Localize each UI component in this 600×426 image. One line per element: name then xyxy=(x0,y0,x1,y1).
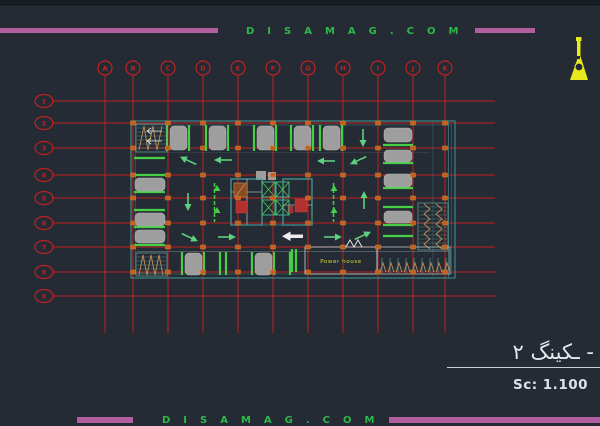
column-marker xyxy=(201,196,206,200)
column-marker xyxy=(201,221,206,225)
grid-label-6: 6 xyxy=(42,219,47,227)
direction-arrow xyxy=(218,234,236,241)
main-entry-arrow xyxy=(282,232,303,242)
column-marker xyxy=(411,221,416,225)
column-marker xyxy=(443,221,448,225)
breakline-symbol xyxy=(346,240,362,247)
column-marker xyxy=(443,173,448,177)
parking-stall xyxy=(384,174,412,187)
column-marker xyxy=(376,173,381,177)
grid-label-B: B xyxy=(131,64,136,72)
bottom-accent-bar-right xyxy=(389,417,600,423)
column-marker xyxy=(271,270,276,274)
column-marker xyxy=(376,245,381,249)
grid-label-A: A xyxy=(102,64,107,72)
column-marker xyxy=(131,221,136,225)
grid-label-C: C xyxy=(166,64,171,72)
page: { "banner_top": { "text": "DISAMAG.COM" … xyxy=(0,0,600,425)
column-marker xyxy=(236,221,241,225)
column-marker xyxy=(236,173,241,177)
bottom-accent-bar-left xyxy=(77,417,133,423)
column-marker xyxy=(271,146,276,150)
column-marker xyxy=(443,121,448,125)
column-marker xyxy=(131,196,136,200)
parking-stall xyxy=(170,126,187,150)
parking-stall xyxy=(323,126,340,150)
column-marker xyxy=(166,270,171,274)
column-marker xyxy=(131,173,136,177)
column-marker xyxy=(411,196,416,200)
grid-label-E: E xyxy=(236,64,240,72)
column-marker xyxy=(201,121,206,125)
stall-dividers xyxy=(167,125,342,151)
column-marker xyxy=(271,121,276,125)
column-marker xyxy=(411,270,416,274)
column-marker xyxy=(271,173,276,177)
title-block: ـکینگ ۲ - Sc: 1.100 xyxy=(447,340,600,393)
grid-label-1: 1 xyxy=(42,97,47,105)
column-marker xyxy=(131,245,136,249)
direction-arrow xyxy=(317,158,335,165)
column-marker xyxy=(131,146,136,150)
parking-stall xyxy=(384,211,412,223)
column-marker xyxy=(443,245,448,249)
grid-label-D: D xyxy=(200,64,206,72)
column-marker xyxy=(341,121,346,125)
column-marker xyxy=(341,173,346,177)
grid-label-2: 2 xyxy=(42,119,47,127)
floor-plan: Power house xyxy=(131,121,455,278)
parking-stall xyxy=(135,230,165,243)
direction-arrow xyxy=(180,230,199,244)
column-marker xyxy=(166,146,171,150)
parking-stall xyxy=(384,128,412,142)
column-marker xyxy=(201,245,206,249)
column-marker xyxy=(341,221,346,225)
column-marker xyxy=(166,121,171,125)
column-marker xyxy=(443,196,448,200)
column-marker xyxy=(306,121,311,125)
column-marker xyxy=(271,245,276,249)
direction-arrow xyxy=(214,157,232,164)
power-house-room: Power house xyxy=(292,240,377,274)
column-marker xyxy=(443,270,448,274)
grid-label-9: 9 xyxy=(42,292,47,300)
column-marker xyxy=(201,173,206,177)
column-marker xyxy=(236,245,241,249)
scale-label: Sc: 1.100 xyxy=(447,377,600,393)
grid-label-I: I xyxy=(377,64,379,72)
column-marker xyxy=(376,221,381,225)
column-marker xyxy=(131,270,136,274)
grid-label-3: 3 xyxy=(42,144,47,152)
direction-arrow xyxy=(353,229,372,243)
ramp-hatch-bottom-left xyxy=(136,253,167,276)
column-marker xyxy=(376,121,381,125)
column-marker xyxy=(341,245,346,249)
column-marker xyxy=(306,173,311,177)
drawing-title: ـکینگ ۲ - xyxy=(447,340,600,368)
grid-label-G: G xyxy=(305,64,310,72)
column-marker xyxy=(271,196,276,200)
direction-arrow xyxy=(185,193,192,211)
parking-stalls-top xyxy=(167,125,342,151)
column-marker xyxy=(306,270,311,274)
power-house-label: Power house xyxy=(320,259,362,265)
column-marker xyxy=(411,245,416,249)
parking-stall xyxy=(135,213,165,226)
column-marker xyxy=(236,270,241,274)
column-marker xyxy=(166,173,171,177)
column-marker xyxy=(376,196,381,200)
grid-label-H: H xyxy=(340,64,345,72)
direction-arrow xyxy=(348,153,367,167)
grid-label-J: J xyxy=(411,64,414,72)
grid-label-5: 5 xyxy=(42,194,47,202)
direction-arrow xyxy=(360,129,367,147)
column-marker xyxy=(411,173,416,177)
parking-stall xyxy=(209,126,226,150)
parking-stall xyxy=(135,178,165,191)
grid-label-7: 7 xyxy=(42,243,47,251)
column-marker xyxy=(341,146,346,150)
column-marker xyxy=(306,146,311,150)
site-title-bottom: DISAMAG.COM xyxy=(162,415,387,426)
parking-stalls-right xyxy=(383,128,413,236)
column-marker xyxy=(443,146,448,150)
parking-stalls-left xyxy=(134,158,165,245)
grid-label-K: K xyxy=(442,64,448,72)
grid-label-F: F xyxy=(271,64,275,72)
column-marker xyxy=(341,196,346,200)
direction-arrow xyxy=(324,234,342,241)
grid-label-8: 8 xyxy=(42,268,47,276)
parking-stall xyxy=(185,253,202,275)
column-marker xyxy=(236,146,241,150)
column-marker xyxy=(411,121,416,125)
column-marker xyxy=(341,270,346,274)
direction-arrow xyxy=(178,154,197,168)
direction-arrow xyxy=(361,191,368,209)
column-marker xyxy=(376,146,381,150)
column-marker xyxy=(201,270,206,274)
parking-stall xyxy=(255,253,272,275)
column-marker xyxy=(166,221,171,225)
column-marker xyxy=(411,146,416,150)
column-marker xyxy=(236,196,241,200)
grid-label-4: 4 xyxy=(42,171,47,179)
column-marker xyxy=(306,245,311,249)
column-marker xyxy=(201,146,206,150)
column-marker xyxy=(236,121,241,125)
ramp-hatch-top-left xyxy=(136,124,167,152)
column-marker xyxy=(166,196,171,200)
column-marker xyxy=(131,121,136,125)
column-marker xyxy=(376,270,381,274)
column-marker xyxy=(306,221,311,225)
column-marker xyxy=(166,245,171,249)
parking-stall xyxy=(384,150,412,162)
column-marker xyxy=(271,221,276,225)
column-marker xyxy=(306,196,311,200)
